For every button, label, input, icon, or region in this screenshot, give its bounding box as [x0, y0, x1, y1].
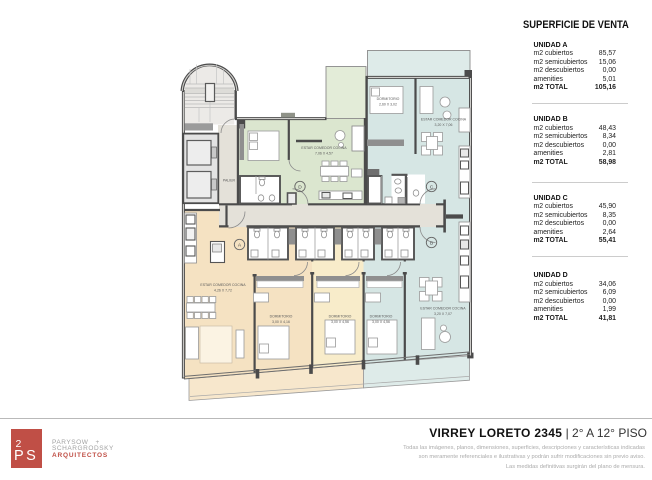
svg-text:2,60 X 3,02: 2,60 X 3,02: [379, 103, 397, 107]
svg-text:ESTAR COMEDOR COCINA: ESTAR COMEDOR COCINA: [420, 307, 466, 311]
svg-text:3,20 X 7,06: 3,20 X 7,06: [435, 123, 453, 127]
svg-text:DORMITORIO: DORMITORIO: [329, 315, 352, 319]
svg-text:4,26 X 7,72: 4,26 X 7,72: [214, 289, 232, 293]
svg-text:3,20 X 7,07: 3,20 X 7,07: [434, 312, 452, 316]
svg-text:3,00 X 4,56: 3,00 X 4,56: [331, 320, 349, 324]
svg-text:DORMITORIO: DORMITORIO: [270, 315, 293, 319]
svg-text:3,00 X 4,16: 3,00 X 4,16: [272, 320, 290, 324]
svg-text:D: D: [298, 185, 302, 191]
svg-text:7,06 X 4,57: 7,06 X 4,57: [315, 152, 333, 156]
svg-text:B: B: [430, 241, 433, 247]
svg-text:ESTAR COMEDOR COCINA: ESTAR COMEDOR COCINA: [200, 283, 246, 287]
svg-text:DORMITORIO: DORMITORIO: [377, 97, 400, 101]
svg-text:C: C: [430, 185, 434, 191]
svg-text:DORMITORIO: DORMITORIO: [370, 315, 393, 319]
svg-text:ESTAR COMEDOR COCINA: ESTAR COMEDOR COCINA: [301, 146, 347, 150]
svg-text:3,00 X 4,56: 3,00 X 4,56: [372, 320, 390, 324]
svg-text:ESTAR COMEDOR COCINA: ESTAR COMEDOR COCINA: [421, 118, 467, 122]
svg-text:PALIER: PALIER: [223, 179, 236, 183]
